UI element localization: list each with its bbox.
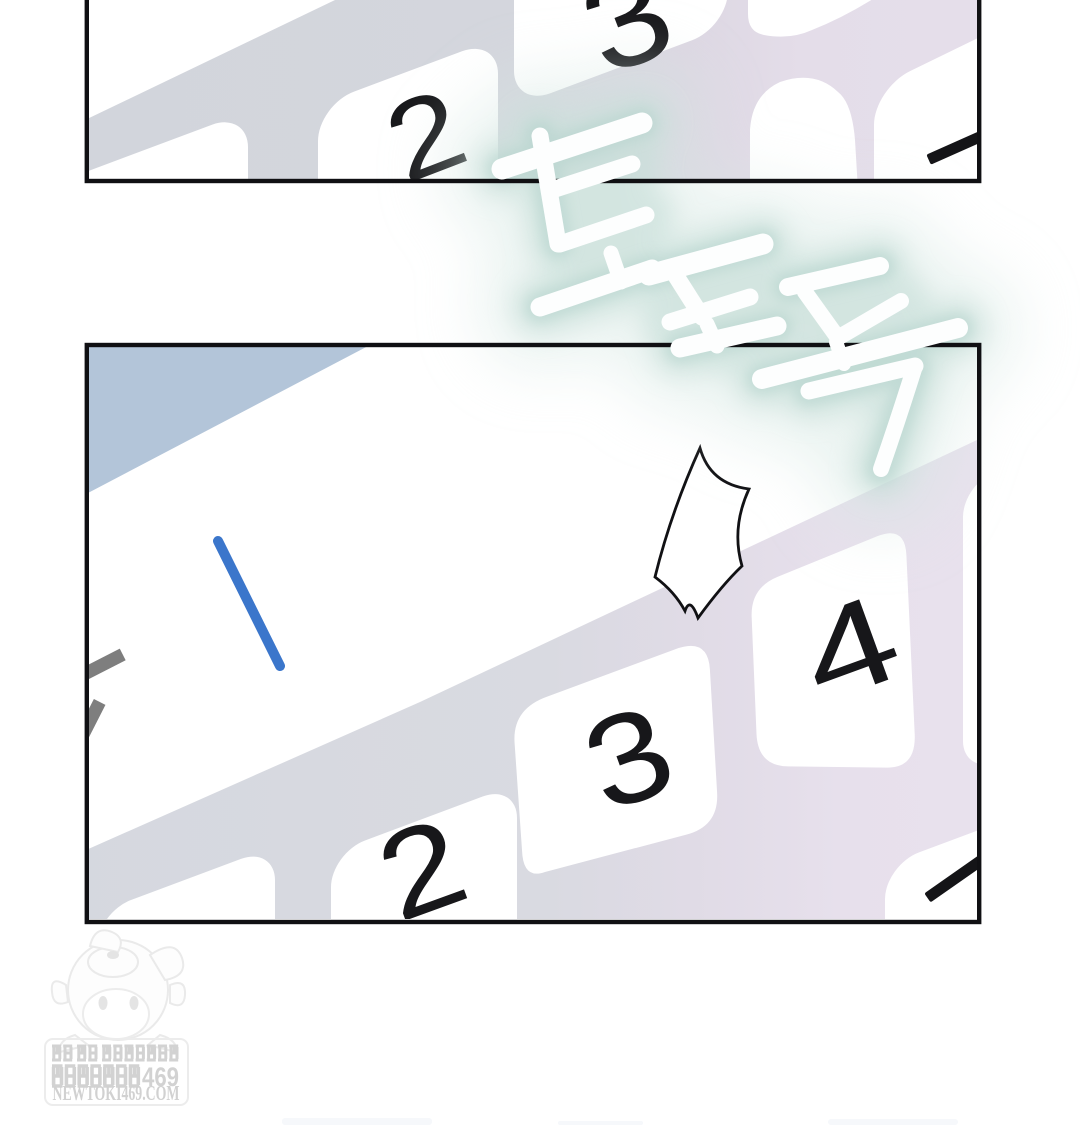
svg-text:NEWTOKI469.COM: NEWTOKI469.COM xyxy=(53,1081,180,1105)
